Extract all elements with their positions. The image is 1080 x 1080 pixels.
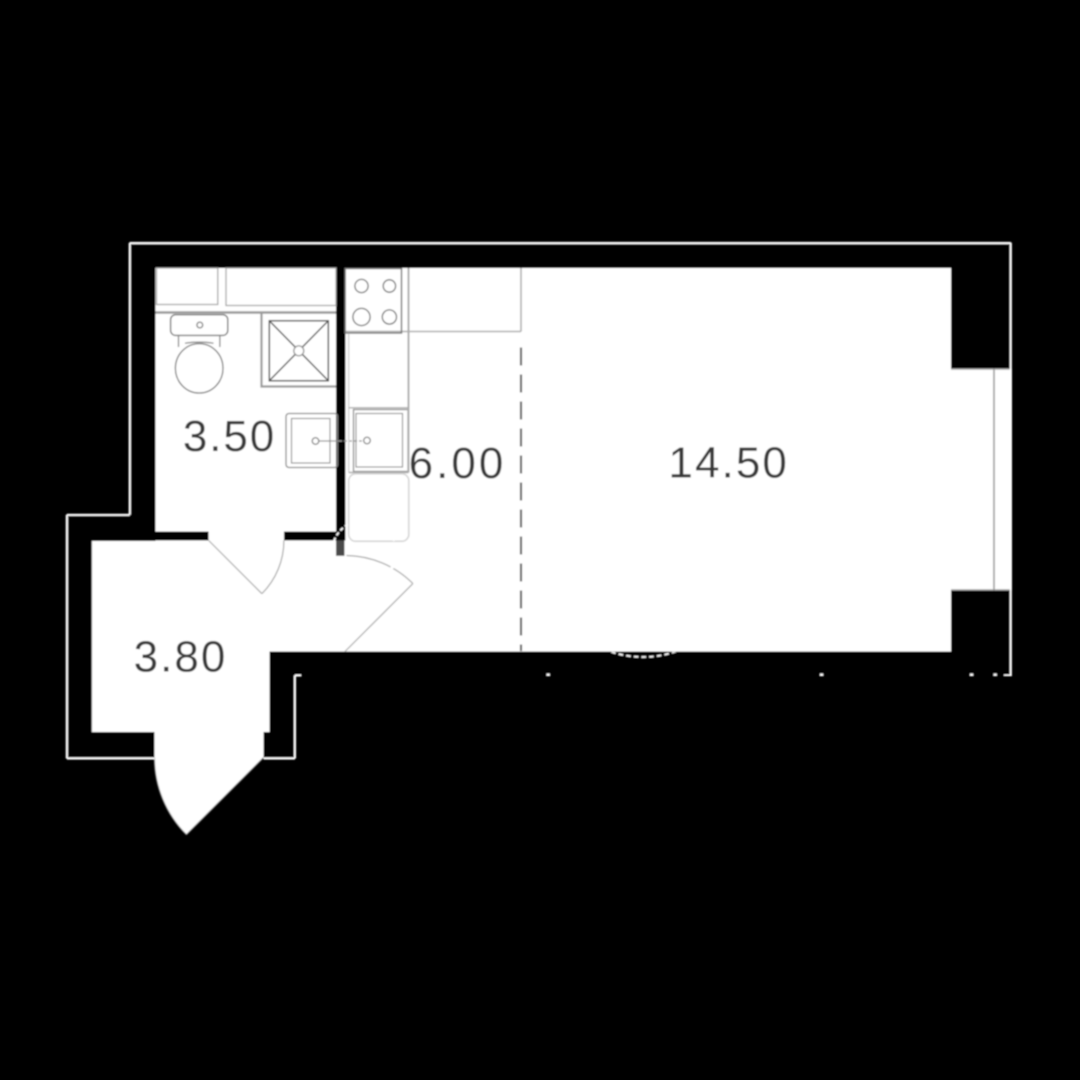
svg-text:14.50: 14.50: [668, 439, 789, 488]
svg-text:3.50: 3.50: [183, 412, 276, 461]
svg-text:6.00: 6.00: [409, 439, 507, 488]
svg-text:3.80: 3.80: [134, 633, 228, 682]
